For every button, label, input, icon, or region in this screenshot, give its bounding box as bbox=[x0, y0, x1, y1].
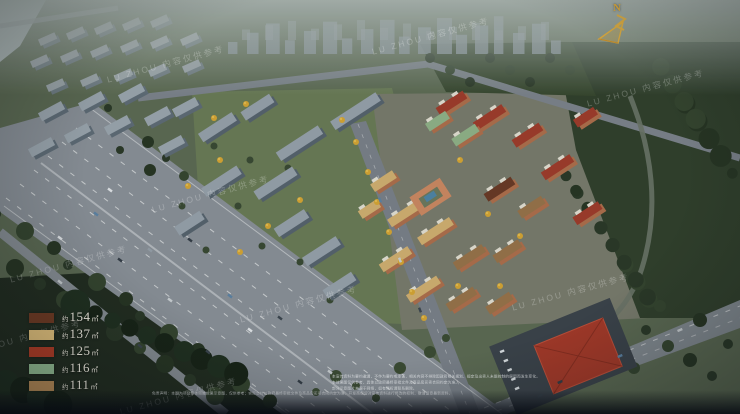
area-unit: ㎡ bbox=[92, 348, 99, 359]
legend-label: 约111㎡ bbox=[62, 379, 98, 393]
legend-label: 约154㎡ bbox=[62, 311, 99, 325]
legend-label: 约116㎡ bbox=[62, 362, 98, 376]
compass-n-label: N bbox=[613, 2, 621, 14]
disclaimer-line: 本宣传资料为要约邀请，不作为要约或承诺，相关内容不排除因政府相关规划、规定及出卖… bbox=[332, 374, 594, 378]
aerial-rendering-canvas: LU ZHOU 内容仅供参考 LU ZHOU 内容仅供参考 LU ZHOU 内容… bbox=[0, 0, 740, 414]
area-value: 125 bbox=[70, 345, 91, 356]
approx-prefix: 约 bbox=[62, 348, 69, 359]
compass: N bbox=[592, 2, 640, 58]
area-value: 137 bbox=[70, 328, 91, 339]
area-unit: ㎡ bbox=[92, 314, 99, 325]
approx-prefix: 约 bbox=[62, 382, 69, 393]
legend-swatch bbox=[29, 364, 54, 374]
legend-item: 约137㎡ bbox=[29, 329, 99, 340]
legend-swatch bbox=[29, 381, 54, 391]
legend-item: 约111㎡ bbox=[29, 380, 99, 391]
legend-swatch bbox=[29, 330, 54, 340]
legend-item: 约116㎡ bbox=[29, 363, 99, 374]
approx-prefix: 约 bbox=[62, 314, 69, 325]
aerial-scene-illustration bbox=[0, 0, 740, 414]
area-unit: ㎡ bbox=[92, 331, 99, 342]
legend-item: 约154㎡ bbox=[29, 312, 99, 323]
unit-type-legend: 约154㎡ 约137㎡ 约125㎡ 约116㎡ 约111㎡ bbox=[29, 312, 99, 391]
area-value: 116 bbox=[70, 362, 91, 373]
approx-prefix: 约 bbox=[62, 365, 69, 376]
legend-label: 约137㎡ bbox=[62, 328, 99, 342]
approx-prefix: 约 bbox=[62, 331, 69, 342]
area-unit: ㎡ bbox=[91, 365, 98, 376]
area-unit: ㎡ bbox=[91, 382, 98, 393]
legend-swatch bbox=[29, 347, 54, 357]
legend-item: 约125㎡ bbox=[29, 346, 99, 357]
disclaimer-line: 本效果图仅供参考，具体以政府最终审批文件及商品房买卖合同约定为准。 bbox=[332, 380, 521, 384]
area-value: 154 bbox=[70, 311, 91, 322]
area-value: 111 bbox=[70, 379, 90, 390]
disclaimer-line: 免责声明：本图为项目整体鸟瞰效果示意图，仅供参考；实际交付以政府最终审批文件及商… bbox=[152, 391, 599, 395]
disclaimer-line: 部分示意图片来源于网络，如有侵权请联系删除。 bbox=[332, 386, 463, 390]
legend-swatch bbox=[29, 313, 54, 323]
legend-label: 约125㎡ bbox=[62, 345, 99, 359]
